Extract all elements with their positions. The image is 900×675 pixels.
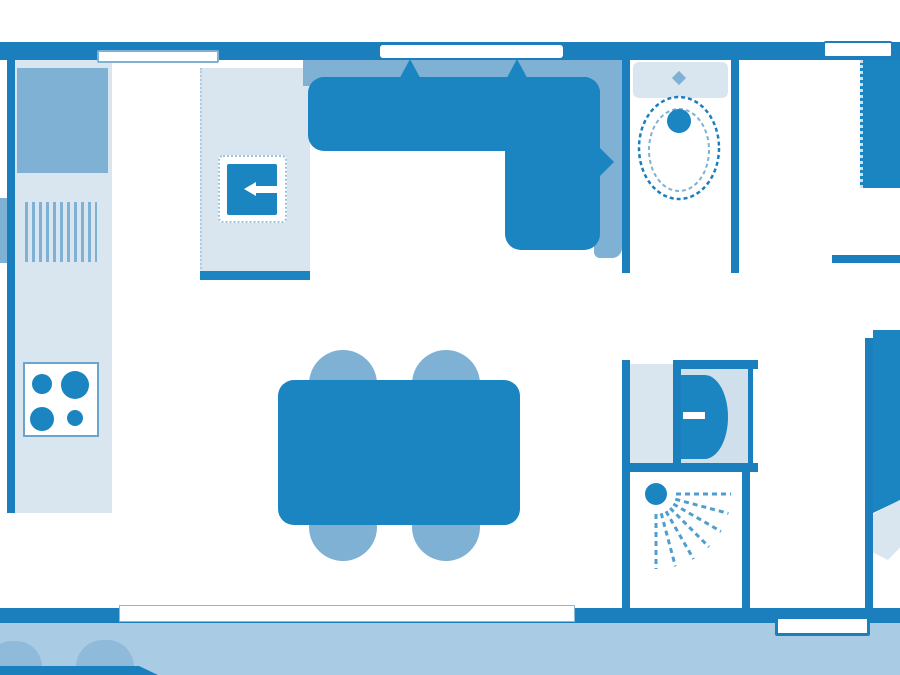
fridge-door-arrowhead-icon — [244, 182, 256, 196]
left-wall — [7, 57, 15, 513]
basin-niche-wall-top — [673, 360, 758, 369]
hall-wall-stub — [832, 255, 900, 263]
toilet-room-wall-right — [731, 57, 739, 273]
wardrobe-icon — [860, 60, 900, 188]
hob-burner — [30, 407, 54, 431]
cushion-divider-icon — [599, 147, 614, 177]
bedroom-partition-wall — [865, 338, 873, 610]
cushion-divider-icon — [396, 59, 424, 85]
hob-burner — [67, 410, 83, 426]
bathroom-divider-wall — [622, 463, 758, 472]
path-icon — [0, 666, 158, 675]
toilet-room-wall-left — [622, 57, 630, 273]
hob-burner — [61, 371, 89, 399]
dining-table-icon — [278, 380, 520, 525]
basin-niche-wall-right — [748, 369, 753, 465]
hob-burner — [32, 374, 52, 394]
fridge-door-arrow-icon — [255, 186, 283, 193]
draining-board-icon — [25, 202, 97, 262]
shower-icon — [640, 478, 750, 578]
window — [97, 50, 219, 63]
cushion-divider-icon — [503, 59, 531, 85]
kitchen-unit-base — [200, 271, 310, 280]
window — [775, 616, 870, 636]
worktop-icon — [17, 68, 108, 173]
basin-tap-icon — [683, 412, 705, 419]
shower-room-wall-left — [622, 360, 630, 610]
window — [119, 605, 575, 622]
floorplan-canvas — [0, 0, 900, 675]
bed-icon — [873, 330, 900, 513]
toilet-icon — [636, 94, 724, 204]
bathroom-cabinet — [630, 364, 674, 464]
corner-sofa-icon — [300, 55, 630, 260]
basin-niche-wall-left — [673, 360, 681, 465]
window — [380, 45, 563, 58]
window — [823, 41, 893, 58]
